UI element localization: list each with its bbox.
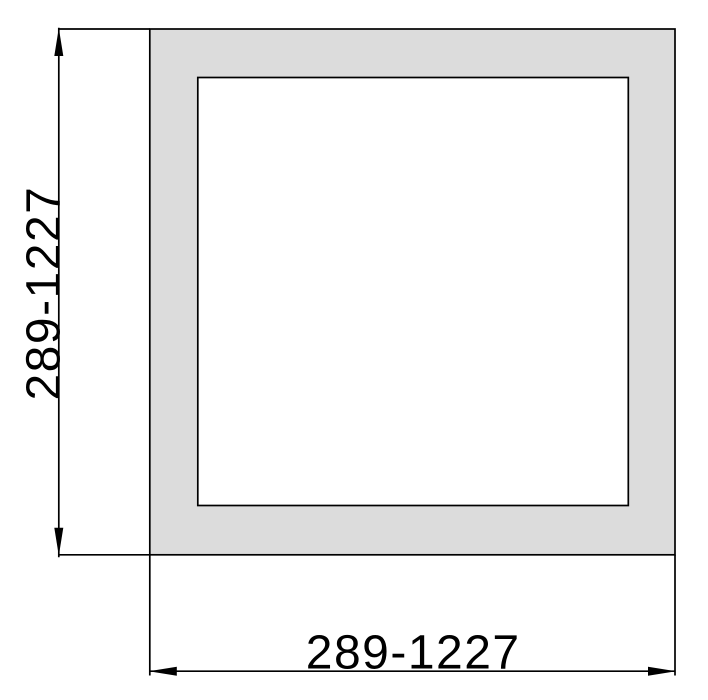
svg-text:289-1227: 289-1227 — [18, 186, 71, 401]
svg-text:289-1227: 289-1227 — [306, 627, 521, 680]
